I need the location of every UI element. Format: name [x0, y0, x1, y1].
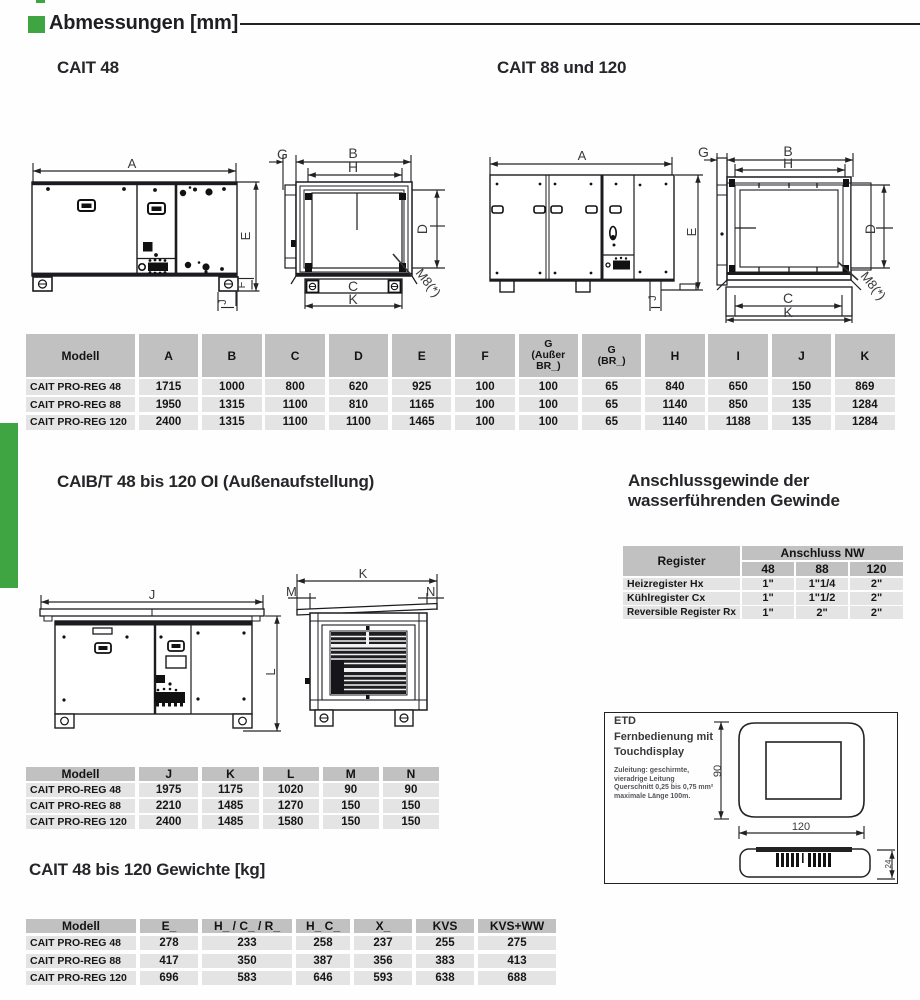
svg-text:M: M — [286, 584, 297, 599]
svg-text:A: A — [128, 156, 137, 171]
svg-text:K: K — [783, 304, 793, 320]
svg-text:F: F — [236, 281, 248, 288]
svg-text:120: 120 — [792, 821, 810, 833]
svg-text:L: L — [263, 668, 278, 675]
svg-text:M8(*): M8(*) — [413, 266, 444, 300]
svg-text:J: J — [647, 295, 659, 301]
svg-text:A: A — [578, 148, 587, 163]
svg-text:D: D — [862, 224, 878, 234]
svg-text:24: 24 — [884, 859, 893, 868]
svg-text:E: E — [238, 231, 253, 240]
svg-text:H: H — [348, 159, 358, 175]
svg-text:K: K — [359, 566, 368, 581]
svg-text:H: H — [783, 155, 793, 171]
svg-text:J: J — [149, 587, 156, 602]
svg-text:G: G — [698, 144, 709, 160]
svg-text:90: 90 — [712, 765, 724, 777]
svg-text:K: K — [348, 291, 358, 307]
svg-text:D: D — [414, 224, 430, 234]
svg-text:J: J — [217, 299, 229, 305]
svg-text:M8(*): M8(*) — [858, 269, 889, 303]
